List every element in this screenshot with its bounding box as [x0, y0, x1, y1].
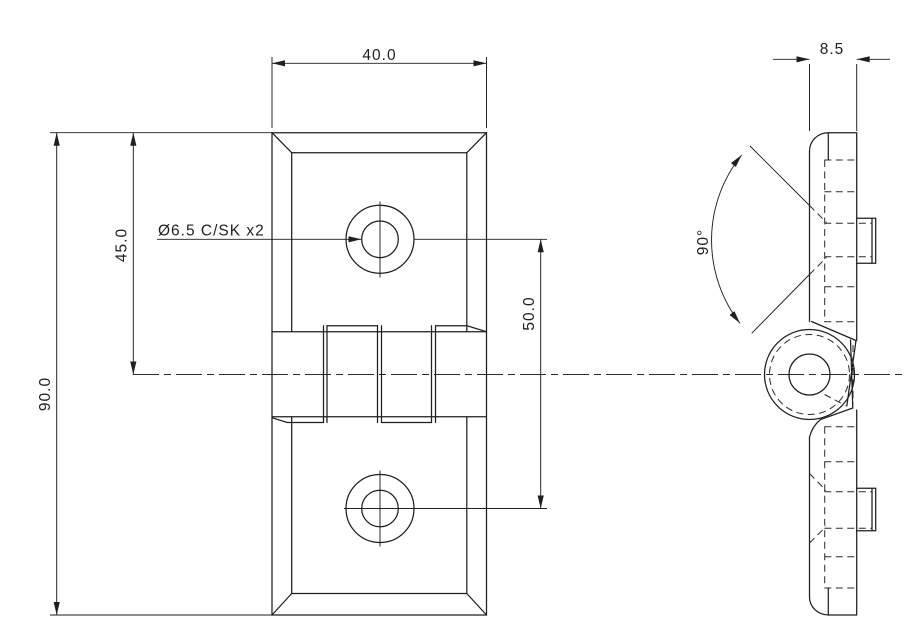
- dim-hole-spacing-label: 50.0: [521, 296, 538, 330]
- hole-callout: Ø6.5 C/SK x2: [157, 223, 362, 243]
- dim-countersink-angle-label: 90°: [695, 229, 712, 255]
- dim-thickness-label: 8.5: [820, 41, 845, 58]
- dim-plate-height-label: 90.0: [37, 377, 54, 411]
- technical-drawing-sheet: 40.0 90.0 45.0 50.0 Ø6.5 C/SK x2 8.5: [0, 0, 924, 636]
- hinge-drawing: 40.0 90.0 45.0 50.0 Ø6.5 C/SK x2 8.5: [0, 0, 924, 636]
- hole-callout-label: Ø6.5 C/SK x2: [158, 223, 265, 240]
- dim-hole-spacing: 50.0: [414, 239, 547, 508]
- side-view: [765, 133, 876, 615]
- bottom-boss: [857, 488, 876, 530]
- front-view: [272, 133, 547, 615]
- dim-plate-height: 90.0: [37, 133, 272, 615]
- bevel-edge-bottom: [292, 417, 467, 594]
- dim-hole-offset-label: 45.0: [114, 228, 131, 262]
- dim-thickness: 8.5: [773, 41, 890, 131]
- dim-hole-offset-top: 45.0: [114, 133, 137, 375]
- bevel-edge-top: [292, 153, 467, 332]
- hidden-lines: [824, 160, 872, 588]
- bottom-hole: [344, 471, 547, 547]
- dim-countersink-angle: 90°: [695, 146, 810, 333]
- dim-plate-width: 40.0: [272, 47, 487, 128]
- side-plate-outline: [809, 133, 856, 615]
- dim-plate-width-label: 40.0: [362, 47, 396, 64]
